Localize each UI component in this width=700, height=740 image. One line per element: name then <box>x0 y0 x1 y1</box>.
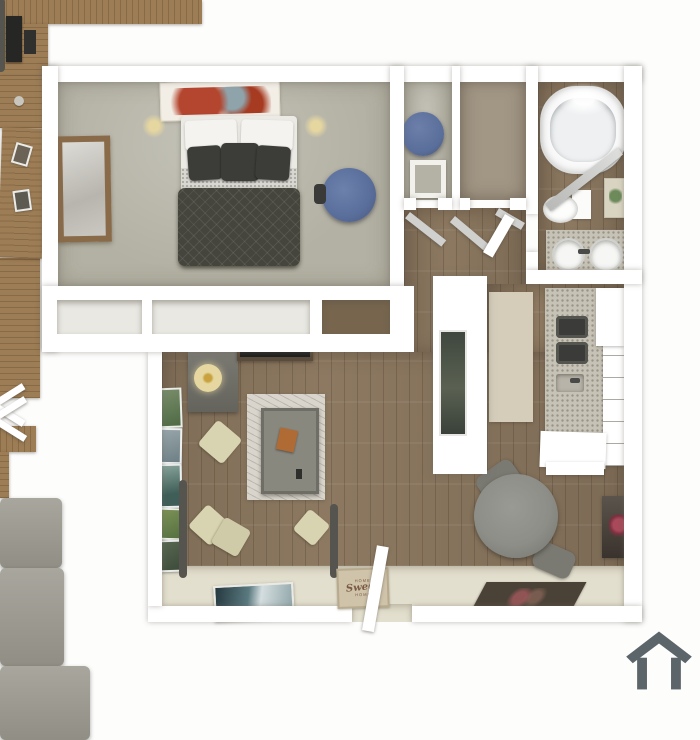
table-lamp <box>194 364 222 392</box>
wall-bottom-left <box>148 606 352 622</box>
dark-rug-floral <box>497 588 558 608</box>
armchair <box>0 498 62 568</box>
abstract-art-paint <box>169 86 272 116</box>
headboard <box>0 0 202 24</box>
wall-right <box>624 66 642 622</box>
wall-hall-stub-3 <box>460 198 470 210</box>
kitchen-runner-rug <box>489 292 533 422</box>
wall-hall-stub-2 <box>438 198 452 210</box>
desk-mug <box>14 96 24 106</box>
partition-tall-art <box>439 330 467 436</box>
desk-monitor <box>6 16 22 62</box>
closet-cell-3 <box>322 300 390 334</box>
wall-closet-divider <box>452 66 460 210</box>
kitchen-faucet <box>570 378 580 383</box>
dresser <box>0 127 46 258</box>
sofa-frame-left <box>179 480 187 578</box>
bed-pillow-dark-3 <box>255 145 291 181</box>
vanity-sink-left <box>552 238 585 271</box>
vanity-faucets <box>578 249 590 254</box>
bed-pillow-dark-1 <box>187 145 223 181</box>
house-watermark <box>624 626 694 696</box>
coffee-table-remote <box>296 469 302 479</box>
coffee-table-book <box>276 427 298 452</box>
picture-frame <box>410 160 446 198</box>
desk <box>0 258 40 398</box>
bed-quilted-blanket <box>178 188 300 266</box>
armchair-frame <box>0 0 5 72</box>
closet-row <box>42 286 414 352</box>
floorplan-render: HOME Sweet HOME <box>0 0 700 700</box>
sofa-chaise <box>0 568 64 666</box>
vanity-sink-right <box>589 238 623 272</box>
wall-hall-stub-4 <box>510 198 526 210</box>
kitchen-end-cabinet-front <box>546 462 604 475</box>
wall-bathroom-bottom <box>526 270 642 284</box>
desk-laptop <box>24 30 36 54</box>
sofa-frame-right <box>330 504 338 578</box>
wall-bathroom-left <box>526 66 538 214</box>
stove-burner-2 <box>556 342 588 364</box>
closet-organizer <box>0 452 9 498</box>
coffee-table <box>261 408 319 494</box>
house-icon <box>624 626 694 696</box>
dresser-photo-2 <box>12 189 32 212</box>
kitchen-partition-wall <box>433 276 487 474</box>
plant-art-leaves <box>609 188 622 206</box>
storage-closet-floor <box>460 78 526 200</box>
dresser-photo-1 <box>11 142 33 167</box>
nightstand-right <box>0 76 48 128</box>
stove-burner-1 <box>556 316 588 338</box>
closet-cell-1 <box>57 300 142 334</box>
wall-mirror <box>56 136 112 243</box>
wall-top <box>42 66 642 82</box>
wall-bedroom-right <box>390 66 404 288</box>
bed-pillow-dark-2 <box>221 143 259 181</box>
sofa-main <box>0 666 90 740</box>
office-chair <box>322 168 376 222</box>
blue-pouf <box>402 112 444 156</box>
closet-cell-2 <box>152 300 310 334</box>
bathtub-basin <box>550 98 616 162</box>
wall-living-left <box>148 352 162 606</box>
wall-hall-stub-1 <box>404 198 416 210</box>
kitchen-upper-cabinet <box>596 288 624 346</box>
dining-table <box>474 474 558 558</box>
wall-bottom-right <box>412 606 642 622</box>
office-chair-armrest <box>314 184 326 204</box>
kitchen-sink <box>556 374 584 392</box>
